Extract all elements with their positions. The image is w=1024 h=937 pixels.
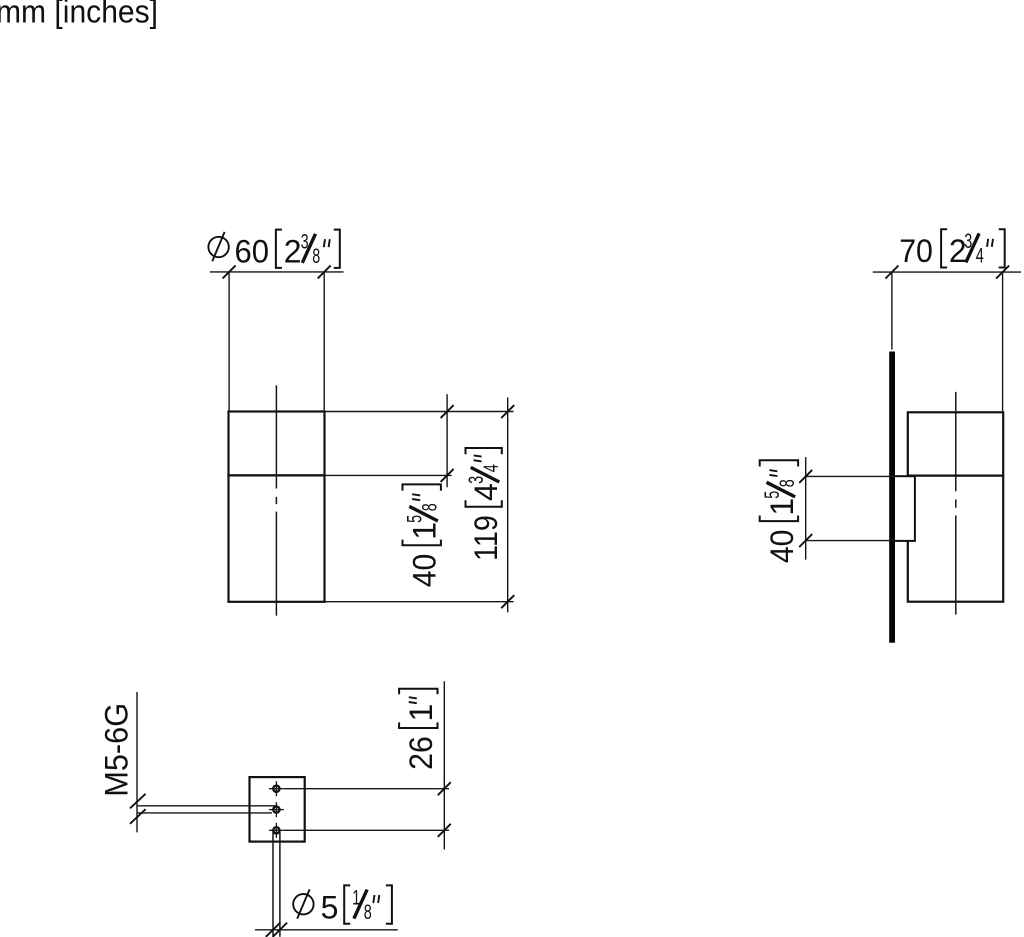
svg-text:1: 1	[764, 498, 800, 516]
svg-text:70: 70	[899, 233, 933, 269]
svg-text:1: 1	[403, 704, 439, 722]
svg-text:3: 3	[464, 476, 488, 484]
svg-text:4: 4	[479, 464, 503, 472]
svg-text:8: 8	[312, 244, 320, 268]
svg-text:4: 4	[468, 483, 504, 501]
svg-text:119: 119	[468, 515, 504, 561]
svg-text:60: 60	[235, 234, 270, 270]
svg-text:26: 26	[403, 736, 439, 770]
svg-text:8: 8	[418, 503, 442, 511]
svg-text:2: 2	[284, 234, 302, 270]
svg-text:5: 5	[403, 515, 427, 523]
svg-text:40: 40	[407, 554, 443, 588]
svg-text:8: 8	[364, 900, 372, 924]
svg-text:5: 5	[321, 889, 339, 925]
svg-text:5: 5	[760, 491, 784, 499]
svg-text:M5-6G: M5-6G	[99, 703, 135, 797]
svg-text:40: 40	[764, 530, 800, 564]
svg-text:1: 1	[407, 522, 443, 540]
svg-text:mm [inches]: mm [inches]	[0, 0, 158, 30]
svg-text:4: 4	[976, 244, 984, 268]
svg-text:8: 8	[775, 479, 799, 487]
